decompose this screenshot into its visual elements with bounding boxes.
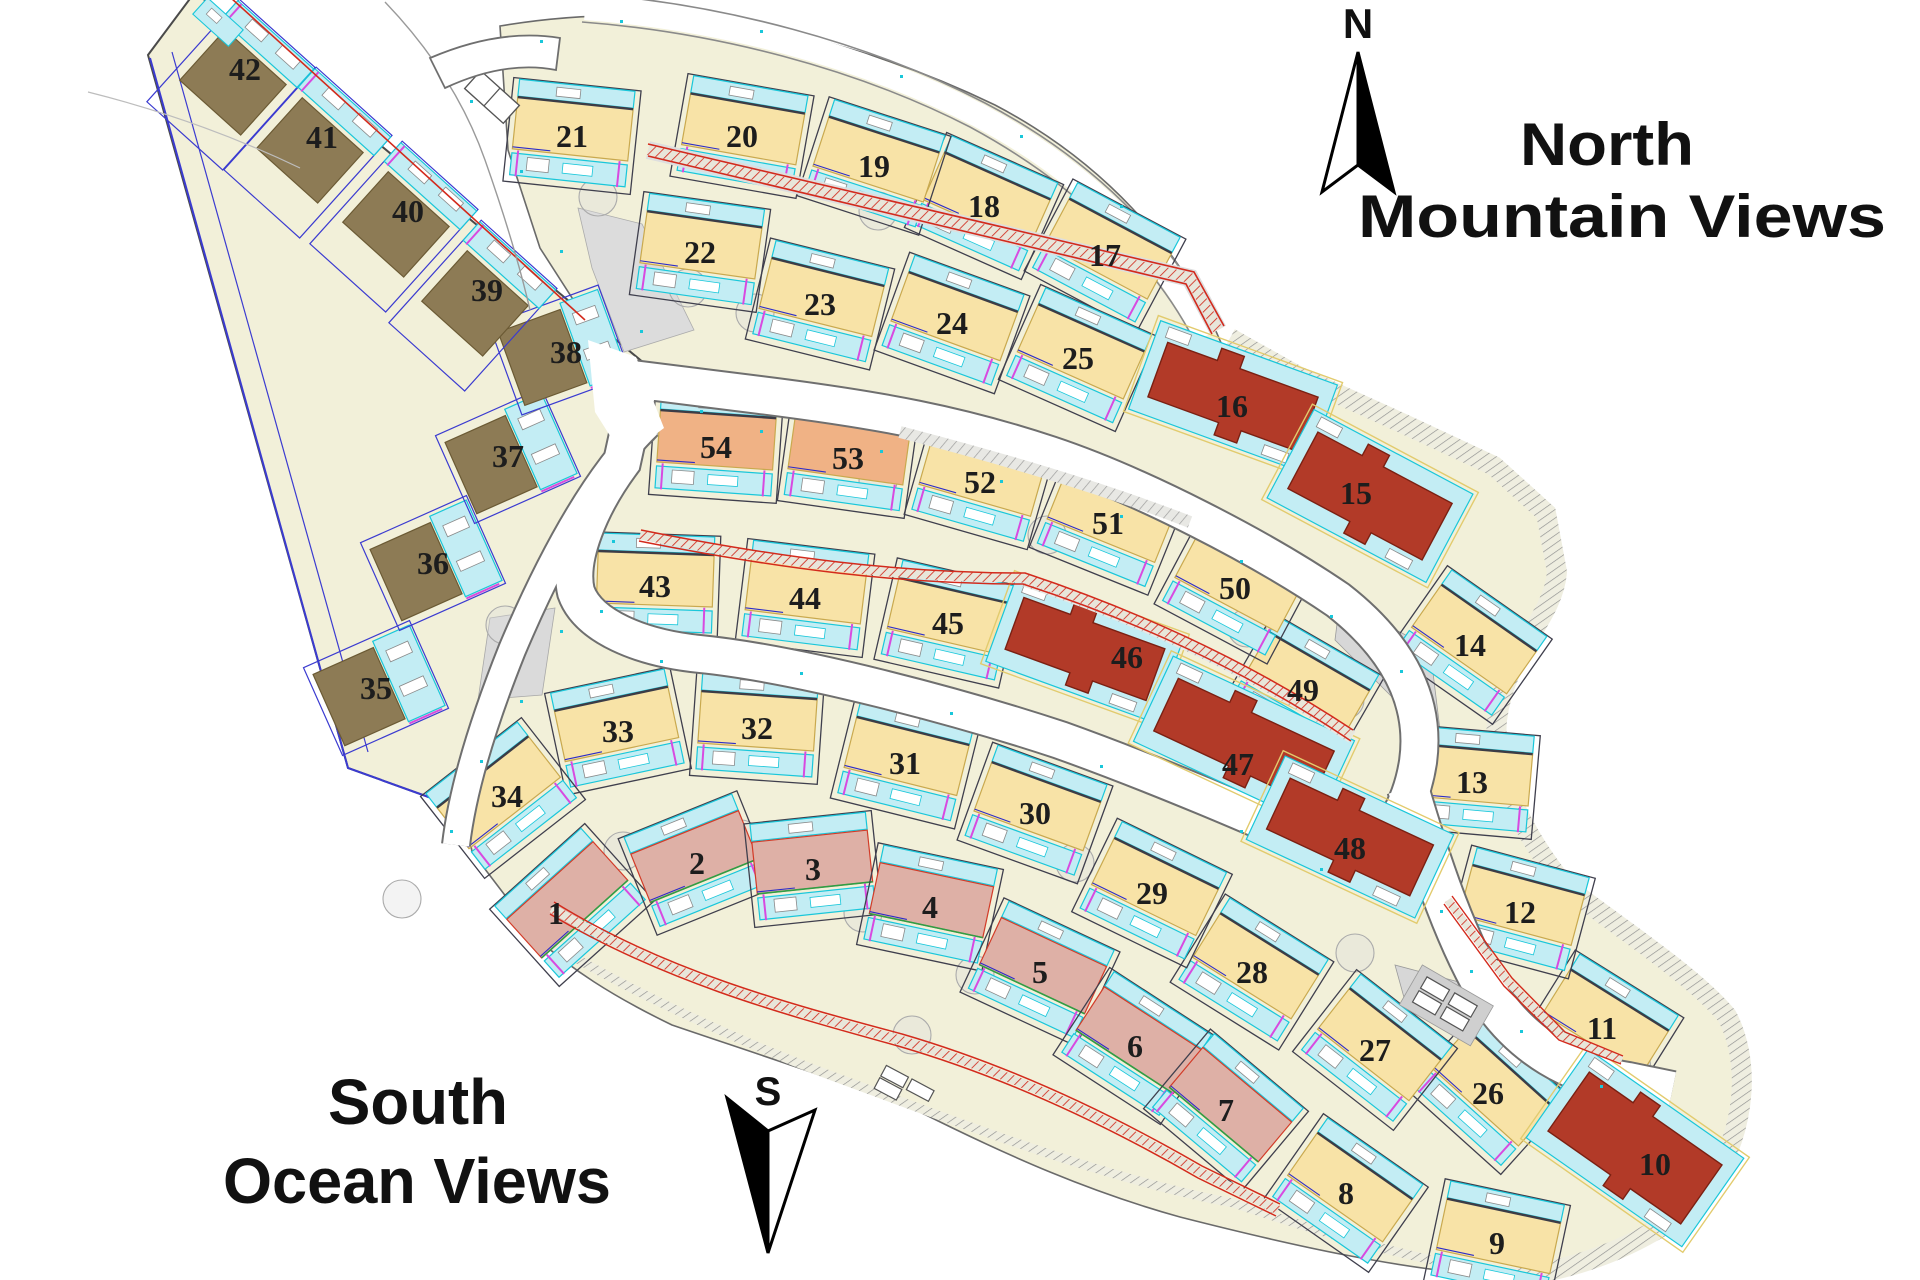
svg-text:46: 46 <box>1111 639 1143 675</box>
svg-text:14: 14 <box>1454 627 1486 663</box>
svg-text:37: 37 <box>492 438 524 474</box>
svg-text:32: 32 <box>741 710 773 746</box>
svg-text:3: 3 <box>805 851 821 887</box>
svg-text:7: 7 <box>1218 1092 1234 1128</box>
svg-text:19: 19 <box>858 148 890 184</box>
svg-text:53: 53 <box>832 440 864 476</box>
svg-text:22: 22 <box>684 234 716 270</box>
svg-text:20: 20 <box>726 118 758 154</box>
svg-text:21: 21 <box>556 118 588 154</box>
svg-text:48: 48 <box>1334 830 1366 866</box>
svg-text:29: 29 <box>1136 875 1168 911</box>
svg-text:30: 30 <box>1019 795 1051 831</box>
svg-text:6: 6 <box>1127 1028 1143 1064</box>
svg-text:South: South <box>328 1066 508 1138</box>
svg-text:S: S <box>755 1070 782 1114</box>
svg-text:5: 5 <box>1032 954 1048 990</box>
svg-text:39: 39 <box>471 272 503 308</box>
svg-text:49: 49 <box>1287 672 1319 708</box>
svg-text:47: 47 <box>1222 746 1254 782</box>
svg-text:Ocean Views: Ocean Views <box>223 1145 611 1217</box>
svg-text:8: 8 <box>1338 1175 1354 1211</box>
svg-text:Mountain Views: Mountain Views <box>1358 183 1886 250</box>
svg-text:12: 12 <box>1504 894 1536 930</box>
svg-text:35: 35 <box>360 670 392 706</box>
svg-text:44: 44 <box>789 580 821 616</box>
svg-text:28: 28 <box>1236 954 1268 990</box>
svg-text:16: 16 <box>1216 388 1248 424</box>
svg-text:25: 25 <box>1062 340 1094 376</box>
svg-text:40: 40 <box>392 193 424 229</box>
svg-text:33: 33 <box>602 713 634 749</box>
svg-text:27: 27 <box>1359 1032 1391 1068</box>
svg-text:50: 50 <box>1219 570 1251 606</box>
svg-text:31: 31 <box>889 745 921 781</box>
svg-text:26: 26 <box>1472 1075 1504 1111</box>
svg-text:38: 38 <box>550 334 582 370</box>
svg-text:42: 42 <box>229 51 261 87</box>
svg-text:23: 23 <box>804 286 836 322</box>
svg-text:17: 17 <box>1089 237 1121 273</box>
svg-text:36: 36 <box>417 545 449 581</box>
svg-text:1: 1 <box>548 895 564 931</box>
svg-text:41: 41 <box>306 119 338 155</box>
svg-text:43: 43 <box>639 568 671 604</box>
svg-text:24: 24 <box>936 305 968 341</box>
svg-text:2: 2 <box>689 845 705 881</box>
svg-text:10: 10 <box>1639 1146 1671 1182</box>
svg-text:13: 13 <box>1456 764 1488 800</box>
svg-text:18: 18 <box>968 188 1000 224</box>
svg-text:45: 45 <box>932 605 964 641</box>
svg-text:52: 52 <box>964 464 996 500</box>
svg-text:9: 9 <box>1489 1225 1505 1261</box>
svg-text:51: 51 <box>1092 505 1124 541</box>
svg-text:11: 11 <box>1587 1010 1617 1046</box>
svg-text:N: N <box>1343 0 1373 47</box>
svg-text:North: North <box>1520 111 1694 178</box>
svg-text:34: 34 <box>491 778 523 814</box>
svg-text:15: 15 <box>1340 475 1372 511</box>
svg-text:4: 4 <box>922 889 938 925</box>
svg-text:54: 54 <box>700 429 732 465</box>
